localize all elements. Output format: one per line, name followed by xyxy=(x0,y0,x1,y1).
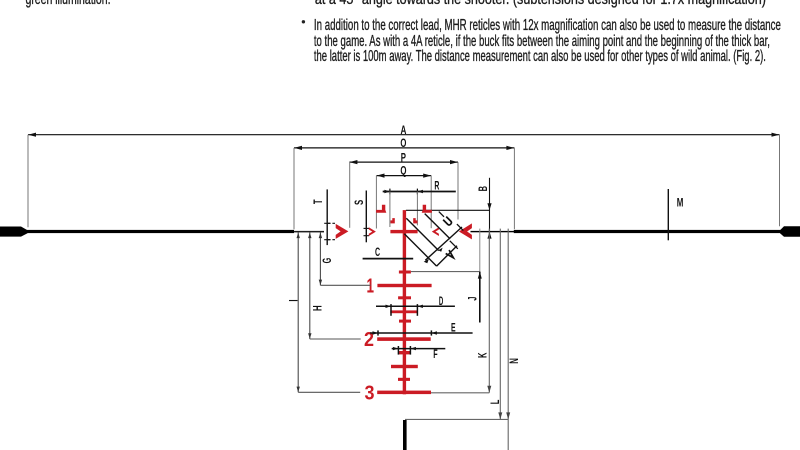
svg-text:D: D xyxy=(439,294,443,308)
svg-text:R: R xyxy=(434,179,439,193)
svg-text:M: M xyxy=(677,196,684,210)
svg-text:T: T xyxy=(311,199,325,204)
svg-text:O: O xyxy=(400,136,406,150)
svg-text:In addition to the correct lea: In addition to the correct lead, MHR ret… xyxy=(314,17,781,34)
svg-text:G: G xyxy=(320,258,334,264)
svg-text:L: L xyxy=(488,399,502,404)
svg-text:1: 1 xyxy=(367,275,375,298)
svg-text:C: C xyxy=(375,245,380,259)
svg-text:K: K xyxy=(475,352,489,358)
svg-text:A: A xyxy=(400,123,406,137)
svg-text:S: S xyxy=(352,200,366,205)
svg-text:I: I xyxy=(286,299,300,301)
svg-text:E: E xyxy=(451,321,456,335)
svg-text:green illumination.: green illumination. xyxy=(26,0,111,8)
svg-text:the latter is 100m away. The d: the latter is 100m away. The distance me… xyxy=(314,48,766,65)
svg-text:at a 45° angle towards the sho: at a 45° angle towards the shooter. (sub… xyxy=(315,0,766,8)
svg-text:B: B xyxy=(476,186,490,191)
svg-text:3: 3 xyxy=(365,382,375,405)
svg-text:Q: Q xyxy=(400,163,406,177)
svg-text:N: N xyxy=(507,358,521,364)
svg-text:J: J xyxy=(466,297,480,301)
svg-text:F: F xyxy=(433,347,438,361)
svg-text:H: H xyxy=(310,305,324,311)
svg-text:P: P xyxy=(401,150,406,164)
